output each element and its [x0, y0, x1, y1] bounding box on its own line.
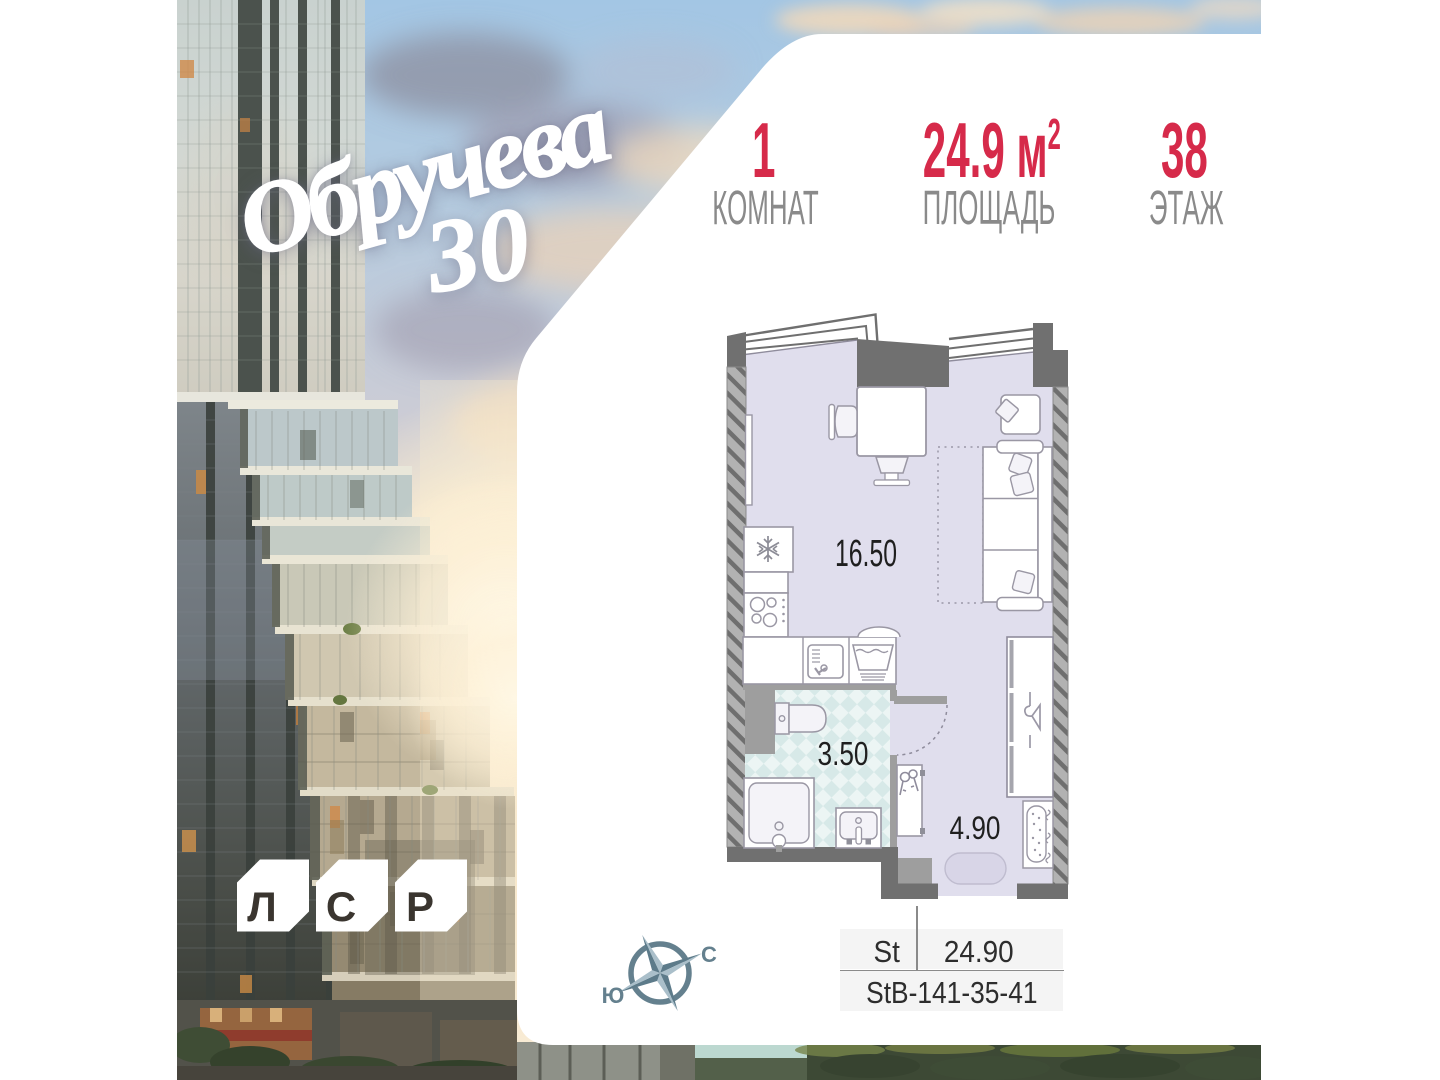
svg-text:16.50: 16.50 — [835, 533, 897, 575]
svg-text:3.50: 3.50 — [818, 735, 869, 772]
svg-text:4.90: 4.90 — [950, 810, 1001, 846]
svg-text:С: С — [701, 942, 717, 967]
svg-text:Ю: Ю — [602, 983, 625, 1008]
